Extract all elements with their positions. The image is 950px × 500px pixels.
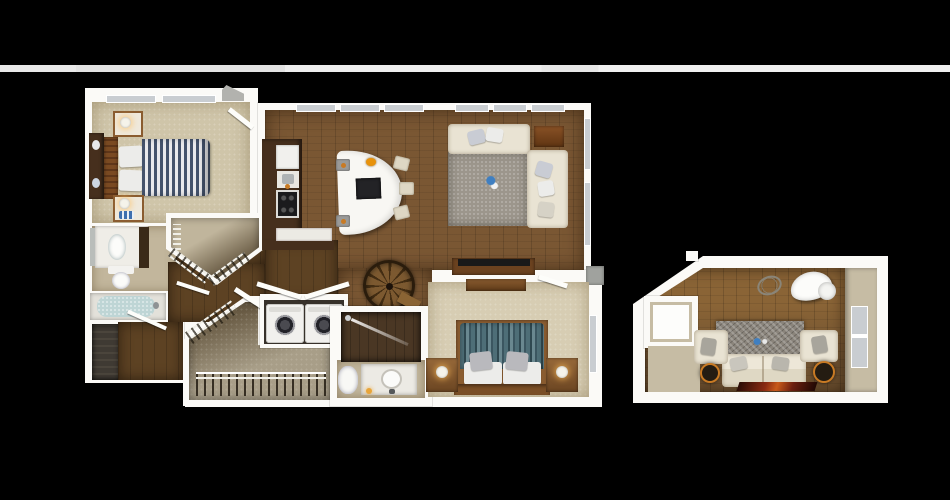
spiral-staircase-center — [386, 283, 393, 290]
cooktop-black — [278, 192, 297, 216]
kitchen-lower-cabinet — [262, 240, 334, 250]
vanity-cabinet — [139, 227, 149, 268]
dresser-decor — [92, 178, 100, 188]
toilet — [338, 366, 358, 394]
living-window-icon — [493, 104, 527, 112]
kitchen-sink — [282, 174, 294, 184]
closet-2-wire-shelving — [196, 372, 326, 396]
bedroom-1-window-icon — [162, 95, 216, 103]
loft-sofa-pillow — [771, 356, 790, 371]
nightstand-decor-blue — [119, 211, 134, 219]
accent-knob — [341, 219, 346, 224]
bed-2-cushion — [469, 351, 493, 372]
loft-side-table — [700, 363, 720, 383]
armchair-pillow — [811, 335, 829, 354]
closet-1-wire-shelf — [173, 224, 181, 250]
loft-wall-tab — [686, 251, 698, 261]
bed-2-headboard — [454, 384, 550, 395]
bathtub-faucet — [153, 302, 159, 309]
vanity-glow — [366, 388, 372, 394]
page-band — [0, 65, 950, 72]
bed-2-cushion — [505, 351, 529, 371]
bed-1-pillow — [119, 170, 144, 192]
bedroom-2-dresser — [466, 279, 526, 291]
corner-side-table — [534, 126, 564, 147]
living-window-icon — [384, 104, 424, 112]
living-window-icon — [455, 104, 489, 112]
maroon-runner — [737, 382, 818, 391]
loft-stair-opening — [650, 302, 692, 342]
kitchen-lower-counter — [276, 228, 332, 241]
armchair-pillow — [700, 337, 717, 356]
bed-1-striped-duvet — [142, 139, 210, 196]
living-window-icon — [340, 104, 380, 112]
accent-knob — [341, 163, 346, 168]
living-right-window-icon — [584, 118, 591, 170]
tv-screen — [458, 259, 530, 266]
living-right-window-icon — [584, 182, 591, 246]
egg-chair-base — [818, 282, 836, 300]
nightstand-lamp — [436, 366, 448, 378]
bathtub-water — [97, 296, 155, 317]
vanity-faucet — [389, 389, 395, 394]
toilet-bowl — [112, 272, 130, 289]
nightstand-lamp — [120, 117, 131, 128]
sofa-pillow — [537, 201, 555, 218]
bedroom-1-window-icon — [106, 95, 156, 103]
sofa-pillow — [485, 127, 504, 143]
dresser-decor — [92, 140, 100, 150]
rug-decor-blue — [486, 176, 498, 189]
loft-sofa-divider — [762, 356, 764, 384]
nightstand-lamp — [556, 366, 568, 378]
washer — [266, 304, 304, 343]
island-chair — [399, 182, 414, 195]
sofa-pillow — [537, 180, 555, 197]
loft-side-table — [813, 361, 835, 383]
vanity-sink — [108, 234, 126, 260]
bedroom-1-headboard — [104, 137, 118, 199]
rug-decor-blue — [752, 337, 769, 346]
refrigerator — [276, 145, 299, 169]
floor-plan-canvas — [0, 0, 950, 500]
shower-head — [345, 315, 351, 321]
island-cooktop — [356, 178, 382, 200]
living-window-icon — [531, 104, 565, 112]
fruit-bowl — [366, 158, 376, 166]
accent-knob — [285, 184, 290, 189]
hallway-floor — [118, 322, 183, 380]
linen-shower-nook — [92, 324, 120, 380]
loft-lower-left-wall — [648, 346, 700, 392]
bed-1-pillow — [118, 145, 143, 167]
living-area-rug — [448, 152, 528, 226]
nightstand-lamp — [119, 198, 130, 209]
loft-window-icon — [851, 306, 868, 368]
vanity-sink-oval — [381, 369, 402, 389]
bedroom-2-window-icon — [589, 315, 597, 373]
living-window-icon — [296, 104, 336, 112]
